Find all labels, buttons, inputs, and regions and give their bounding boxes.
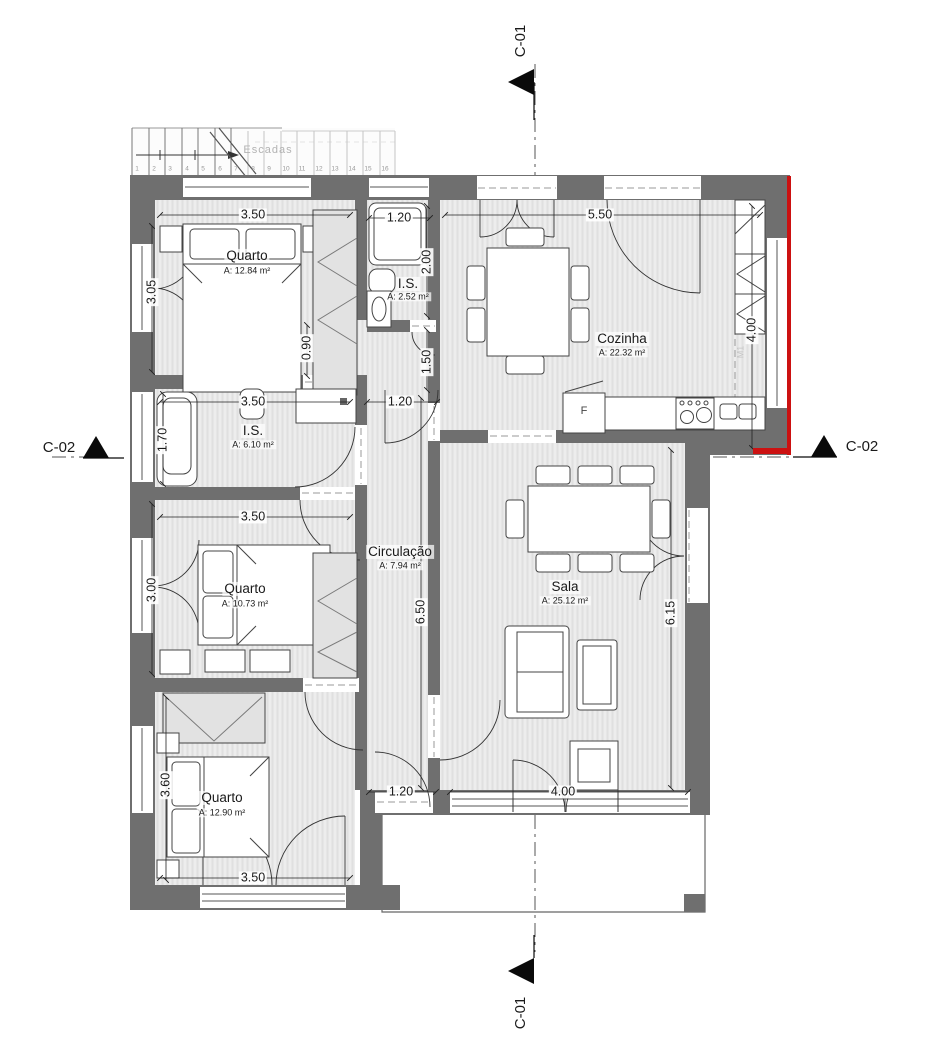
wardrobe bbox=[313, 210, 357, 395]
room-label-quarto2: Quarto bbox=[222, 582, 267, 596]
chair bbox=[506, 228, 544, 246]
stair-step-number: 10 bbox=[282, 167, 289, 174]
stair-step-number: 4 bbox=[185, 167, 189, 174]
section-marker-c02-right bbox=[793, 435, 837, 457]
section-marker-c01-top bbox=[508, 69, 534, 120]
stair-step-number: 5 bbox=[201, 167, 205, 174]
stair-step-number: 14 bbox=[348, 167, 355, 174]
dim-kitchen-door: 1.20 bbox=[386, 395, 414, 408]
room-area-quarto1: A: 12.84 m² bbox=[222, 266, 273, 275]
section-marker-c01-bottom bbox=[508, 935, 534, 984]
dim-is-main-width: 3.50 bbox=[239, 395, 267, 408]
chair bbox=[536, 554, 570, 572]
vanity-counter bbox=[296, 389, 356, 423]
room-label-circulacao: Circulação bbox=[366, 545, 434, 559]
section-label-c01-top: C-01 bbox=[513, 25, 529, 58]
chair bbox=[571, 308, 589, 342]
bench bbox=[250, 650, 290, 672]
chair bbox=[620, 554, 654, 572]
window-leaf bbox=[735, 254, 765, 294]
dim-patio-door: 1.20 bbox=[387, 785, 415, 798]
dim-bed3-height: 3.60 bbox=[159, 771, 172, 799]
room-area-sala: A: 25.12 m² bbox=[540, 596, 591, 605]
stair-step-number: 16 bbox=[381, 167, 388, 174]
wardrobe bbox=[313, 553, 357, 678]
stair-step-number: 13 bbox=[331, 167, 338, 174]
room-area-is-small: A: 2.52 m² bbox=[385, 292, 431, 301]
floor-plan-canvas: Quarto A: 12.84 m² I.S. A: 2.52 m² Cozin… bbox=[0, 0, 931, 1059]
bench bbox=[205, 650, 245, 672]
stair-step-number: 9 bbox=[267, 167, 271, 174]
kitchen-table bbox=[487, 248, 569, 356]
stair-step-number: 3 bbox=[168, 167, 172, 174]
room-area-is-main: A: 6.10 m² bbox=[230, 440, 276, 449]
chair bbox=[506, 500, 524, 538]
dim-sala-doors: 4.00 bbox=[549, 785, 577, 798]
section-label-c02-right: C-02 bbox=[846, 439, 879, 455]
dim-is-small-height: 2.00 bbox=[420, 248, 433, 276]
room-area-cozinha: A: 22.32 m² bbox=[597, 348, 648, 357]
dim-bathtub: 1.70 bbox=[156, 426, 169, 454]
room-label-is-small: I.S. bbox=[396, 277, 420, 291]
dim-hall-passage: 0.90 bbox=[300, 334, 313, 362]
room-area-quarto3: A: 12.90 m² bbox=[197, 808, 248, 817]
stair-step-number: 12 bbox=[315, 167, 322, 174]
room-label-sala: Sala bbox=[549, 580, 580, 594]
patio-pillar bbox=[684, 894, 705, 912]
stairs-label: Escadas bbox=[243, 145, 292, 157]
chair bbox=[571, 266, 589, 300]
nightstand bbox=[157, 733, 179, 753]
chair bbox=[652, 500, 670, 538]
chair bbox=[536, 466, 570, 484]
sink-bowl bbox=[720, 404, 737, 419]
room-label-cozinha: Cozinha bbox=[595, 332, 649, 346]
section-label-c01-bottom: C-01 bbox=[513, 997, 529, 1030]
chair bbox=[506, 356, 544, 374]
room-label-is-main: I.S. bbox=[241, 424, 265, 438]
dim-bed3-width: 3.50 bbox=[239, 871, 267, 884]
side-table bbox=[160, 650, 190, 674]
nightstand bbox=[157, 860, 179, 878]
stair-step-number: 2 bbox=[152, 167, 156, 174]
chair bbox=[578, 466, 612, 484]
dim-bed1-height: 3.05 bbox=[145, 278, 158, 306]
stair-step-number: 11 bbox=[299, 167, 306, 174]
dim-kitchen-width: 5.50 bbox=[586, 208, 614, 221]
dim-bed2-width: 3.50 bbox=[239, 510, 267, 523]
floor-plan-drawing bbox=[0, 0, 931, 1059]
stair-step-number: 1 bbox=[135, 167, 139, 174]
chair bbox=[620, 466, 654, 484]
chair bbox=[467, 266, 485, 300]
section-marker-c02-left bbox=[83, 436, 124, 458]
dim-bed1-width: 3.50 bbox=[239, 208, 267, 221]
quarto3-furniture bbox=[157, 693, 269, 878]
chair bbox=[578, 554, 612, 572]
room-label-quarto1: Quarto bbox=[224, 249, 269, 263]
pillow bbox=[172, 762, 200, 806]
quarto1-furniture bbox=[160, 210, 357, 395]
wall-tag-m1: M1 bbox=[736, 346, 745, 359]
dim-sala-height: 6.15 bbox=[664, 599, 677, 627]
room-area-quarto2: A: 10.73 m² bbox=[220, 599, 271, 608]
dining-table bbox=[528, 486, 650, 552]
stair-step-number: 8 bbox=[251, 167, 255, 174]
dim-circulation-length: 6.50 bbox=[414, 598, 427, 626]
dim-kitchen-height: 4.00 bbox=[745, 316, 758, 344]
dim-is-small-width: 1.20 bbox=[385, 211, 413, 224]
nightstand bbox=[160, 226, 182, 252]
dim-bed2-height: 3.00 bbox=[145, 576, 158, 604]
stair-step-number: 7 bbox=[234, 167, 238, 174]
room-label-quarto3: Quarto bbox=[199, 791, 244, 805]
sink-bowl bbox=[739, 404, 756, 419]
tv-unit bbox=[570, 741, 618, 790]
room-area-circulacao: A: 7.94 m² bbox=[377, 561, 423, 570]
toilet bbox=[369, 269, 395, 293]
fridge-label: F bbox=[581, 406, 588, 418]
section-label-c02-left: C-02 bbox=[43, 440, 76, 456]
dim-hall-upper: 1.50 bbox=[420, 348, 433, 376]
patio bbox=[382, 815, 705, 912]
stair-step-number: 15 bbox=[364, 167, 371, 174]
chair bbox=[467, 308, 485, 342]
stair-step-number: 6 bbox=[218, 167, 222, 174]
